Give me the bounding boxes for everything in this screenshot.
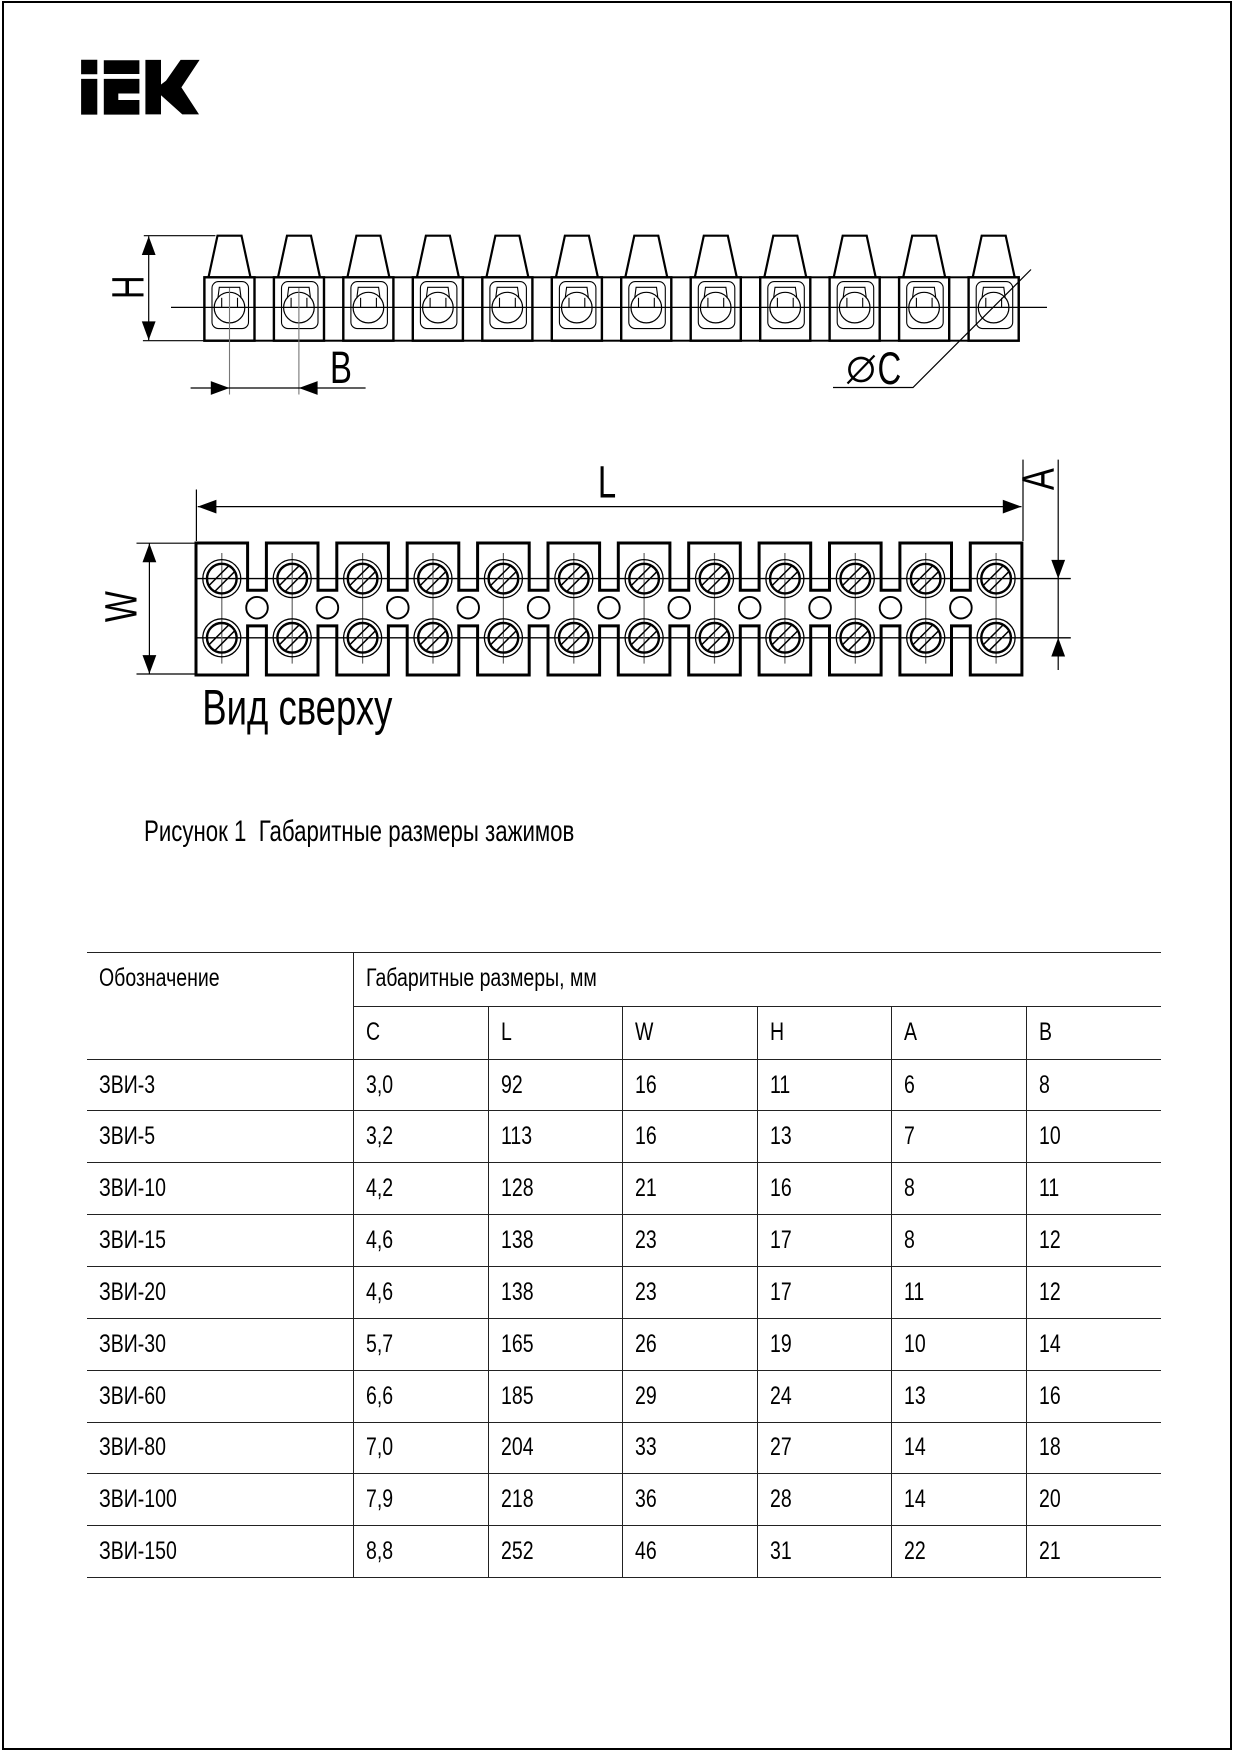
svg-text:H: H (104, 275, 154, 299)
svg-text:L: L (598, 458, 616, 508)
svg-text:C: C (878, 344, 902, 394)
svg-text:W: W (96, 590, 146, 622)
svg-text:Вид сверху: Вид сверху (202, 680, 392, 736)
svg-text:A: A (1014, 468, 1064, 491)
svg-text:B: B (330, 343, 352, 393)
